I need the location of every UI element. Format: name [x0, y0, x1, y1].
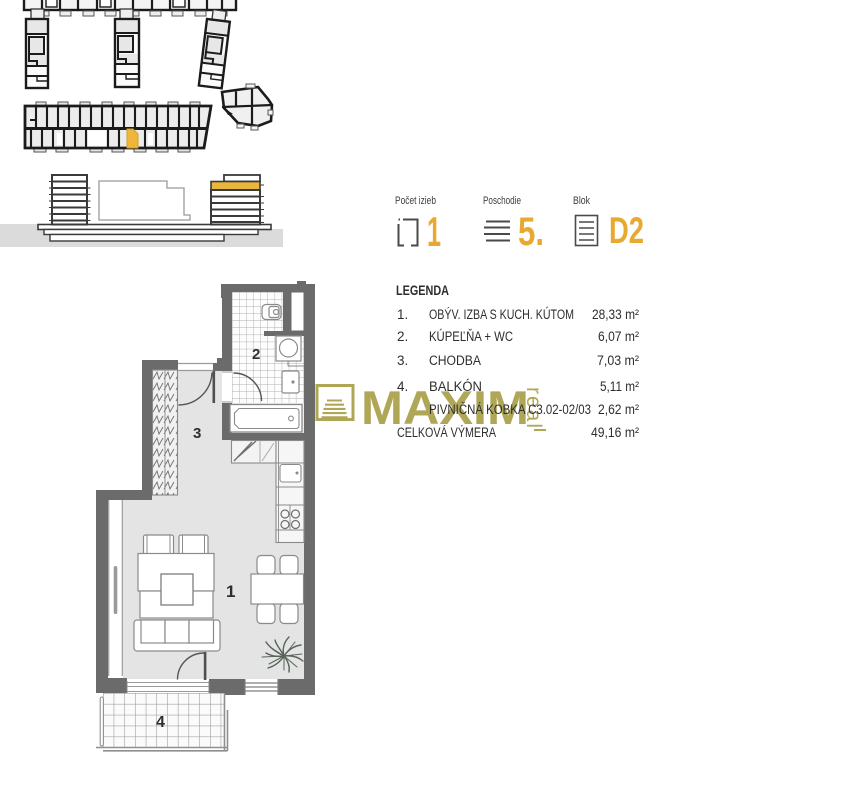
svg-text:OBÝV. IZBA S KUCH. KÚTOM: OBÝV. IZBA S KUCH. KÚTOM — [429, 307, 574, 322]
svg-text:28,33 m²: 28,33 m² — [592, 307, 639, 322]
svg-text:4.: 4. — [397, 379, 408, 394]
svg-text:5,11 m²: 5,11 m² — [600, 379, 639, 394]
svg-text:3: 3 — [193, 425, 201, 442]
svg-text:CELKOVÁ VÝMERA: CELKOVÁ VÝMERA — [397, 425, 496, 440]
svg-text:Počet izieb: Počet izieb — [395, 195, 436, 207]
svg-text:Blok: Blok — [573, 195, 590, 207]
svg-text:2,62 m²: 2,62 m² — [598, 402, 639, 417]
svg-text:6,07 m²: 6,07 m² — [598, 329, 639, 344]
svg-text:Poschodie: Poschodie — [483, 195, 521, 207]
svg-text:5.: 5. — [518, 210, 544, 254]
svg-text:3.: 3. — [397, 353, 408, 368]
svg-text:1.: 1. — [397, 307, 408, 322]
svg-text:LEGENDA: LEGENDA — [396, 282, 449, 298]
svg-text:4: 4 — [156, 714, 165, 731]
svg-text:BALKÓN: BALKÓN — [429, 379, 482, 394]
svg-text:1: 1 — [226, 582, 235, 601]
svg-text:49,16 m²: 49,16 m² — [591, 425, 639, 440]
svg-text:D2: D2 — [609, 210, 644, 251]
svg-text:KÚPEĽŇA + WC: KÚPEĽŇA + WC — [429, 329, 513, 344]
svg-text:CHODBA: CHODBA — [429, 353, 481, 368]
svg-text:2.: 2. — [397, 329, 408, 344]
svg-text:2: 2 — [252, 346, 260, 363]
svg-text:1: 1 — [427, 208, 441, 255]
svg-text:PIVNIČNÁ KOBKA C3.02-02/03: PIVNIČNÁ KOBKA C3.02-02/03 — [429, 402, 591, 417]
svg-text:7,03 m²: 7,03 m² — [597, 353, 639, 368]
